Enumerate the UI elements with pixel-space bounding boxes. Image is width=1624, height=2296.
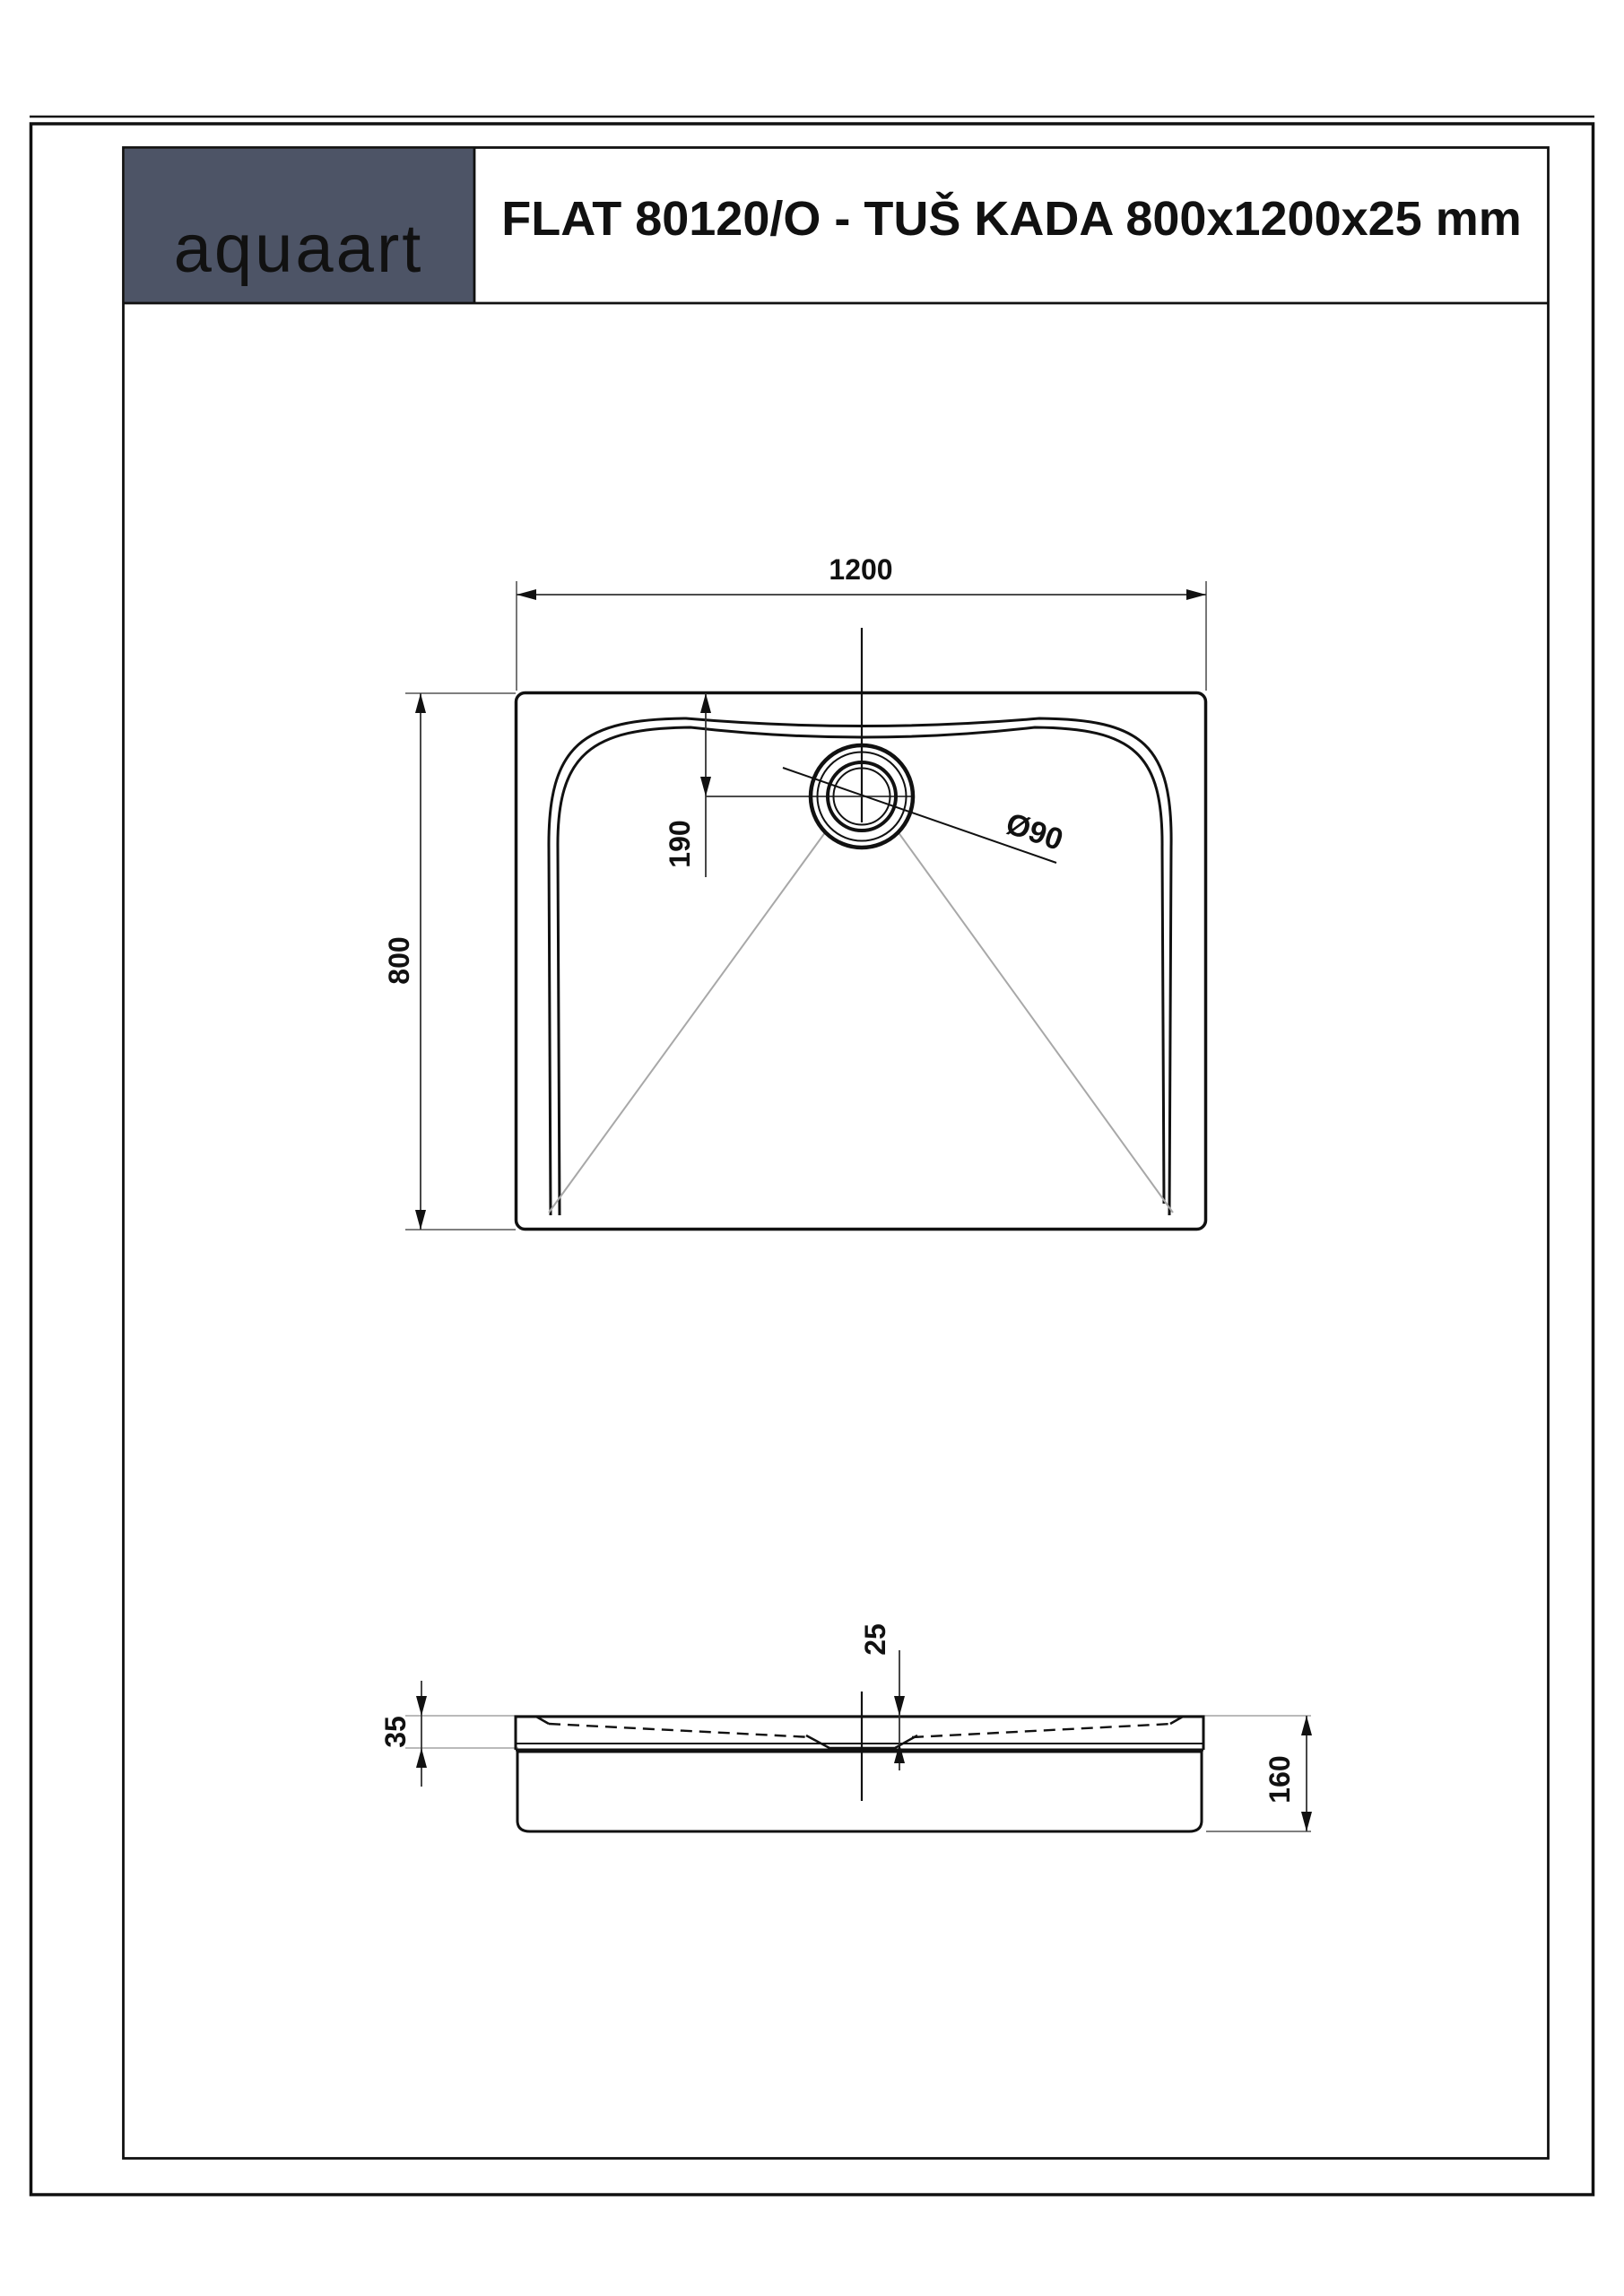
page-background: [0, 0, 1624, 2296]
dim-800-label: 800: [383, 936, 415, 984]
logo-text: aquaart: [174, 211, 424, 287]
dim-160-label: 160: [1264, 1755, 1296, 1803]
page-title: FLAT 80120/O - TUŠ KADA 800x1200x25 mm: [501, 191, 1521, 246]
dim-35-label: 35: [379, 1716, 412, 1748]
dim-25-label: 25: [859, 1623, 891, 1656]
dim-1200-label: 1200: [829, 553, 892, 586]
dim-190-label: 190: [664, 820, 696, 867]
drawing-sheet: aquaart FLAT 80120/O - TUŠ KADA 800x1200…: [0, 0, 1624, 2296]
